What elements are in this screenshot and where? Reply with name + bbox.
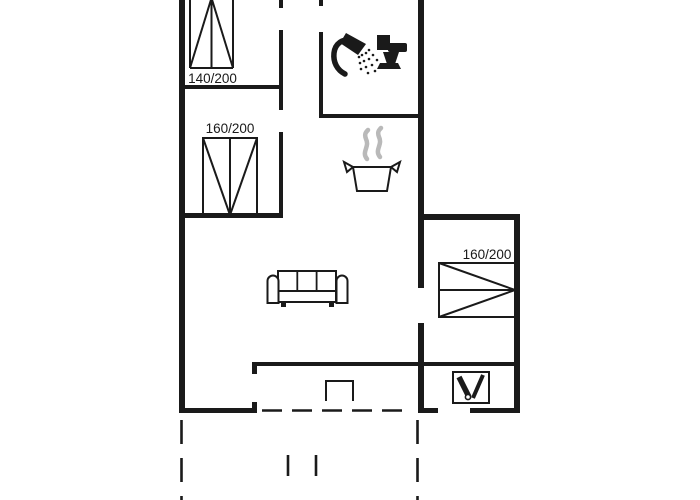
steam-icon (365, 128, 381, 159)
bed-label-top-left: 140/200 (188, 71, 237, 86)
bed-160x200-left (203, 138, 257, 215)
bathroom (334, 33, 407, 74)
bed-label-right: 160/200 (463, 247, 512, 262)
entry-room (453, 372, 489, 403)
bedroom-right: 160/200 (439, 247, 515, 317)
bedroom-mid-left: 160/200 (203, 121, 257, 215)
sofa-icon (268, 271, 348, 307)
bed-140x200 (190, 0, 233, 68)
cooking-pot-icon (344, 162, 400, 191)
bed-label-mid-left: 160/200 (206, 121, 255, 136)
floor-plan: 140/200 160/200 160/200 (0, 0, 700, 500)
floor-plan-drawing: 140/200 160/200 160/200 (0, 0, 700, 500)
bed-160x200-right (439, 263, 515, 317)
terrace-outline (182, 411, 418, 500)
shower-icon (334, 33, 382, 74)
kitchen (344, 128, 400, 191)
shower-spray (358, 49, 383, 75)
terrace-step-icon (326, 381, 353, 401)
living-room (268, 271, 348, 307)
toilet-icon (377, 35, 407, 69)
wood-stove-icon (453, 372, 489, 403)
bedroom-top-left: 140/200 (188, 0, 237, 86)
